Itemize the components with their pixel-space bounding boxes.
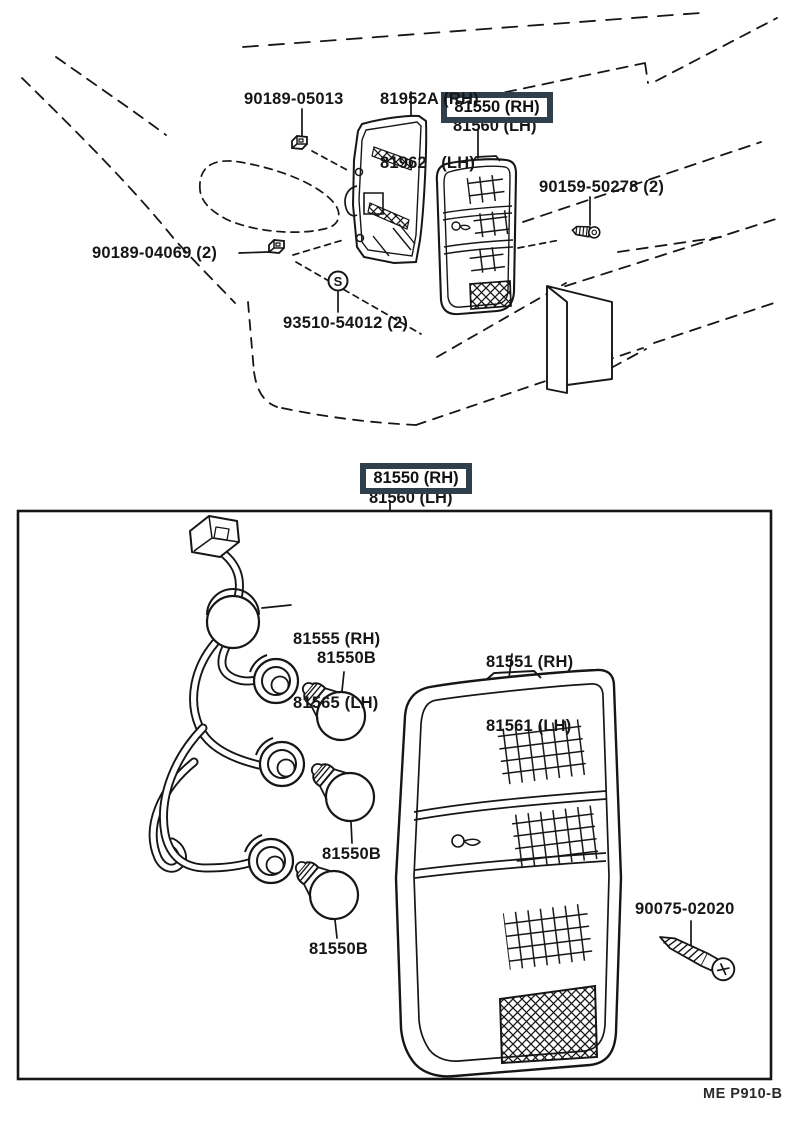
harness-connector [190, 516, 239, 557]
bulb-socket-2 [256, 738, 304, 786]
label-lens-detail-lh: 81561 (LH) [486, 716, 573, 737]
label-screw-marker-part: 93510-54012 (2) [283, 313, 408, 334]
label-screw-side: 90159-50278 (2) [539, 177, 664, 198]
label-bulb-3: 81550B [309, 939, 368, 960]
label-bulb-2: 81550B [322, 844, 381, 865]
license-bracket [547, 286, 612, 393]
harness-grommet [207, 589, 259, 648]
screw-side-icon [572, 225, 600, 239]
label-clip-upper: 90189-05013 [244, 89, 343, 110]
label-bulb-1: 81550B [317, 648, 376, 669]
label-screw-bottom: 90075-02020 [635, 899, 734, 920]
label-lens-detail-rh: 81551 (RH) [486, 652, 573, 673]
bulb-2 [298, 748, 384, 831]
screw-marker-letter: S [334, 274, 343, 289]
label-lamp-body: 81952A (RH) 81962 (LH) [380, 47, 479, 195]
label-socket-cord-rh: 81555 (RH) [293, 629, 380, 650]
bulb-socket-3 [245, 835, 293, 883]
lamp-opening-outline [200, 161, 339, 232]
detail-box [18, 511, 771, 1079]
bulb-socket-1 [250, 655, 298, 703]
label-lamp-body-lh: 81962 (LH) [380, 153, 479, 174]
label-lens-detail: 81551 (RH) 81561 (LH) [486, 610, 573, 758]
label-socket-cord-lh: 81565 (LH) [293, 693, 380, 714]
screw-marker-circle: S [329, 272, 348, 291]
label-assembly-rh-highlighted: 81550 (RH) [360, 463, 472, 494]
label-lamp-body-rh: 81952A (RH) [380, 89, 479, 110]
screw-bottom-icon [655, 927, 738, 984]
drawing-code: ME P910-B [703, 1086, 782, 1102]
clip-upper-icon [292, 136, 307, 149]
clip-lower-icon [269, 240, 284, 253]
parts-diagram-page: S [0, 0, 800, 1130]
label-clip-lower: 90189-04069 (2) [92, 243, 217, 264]
